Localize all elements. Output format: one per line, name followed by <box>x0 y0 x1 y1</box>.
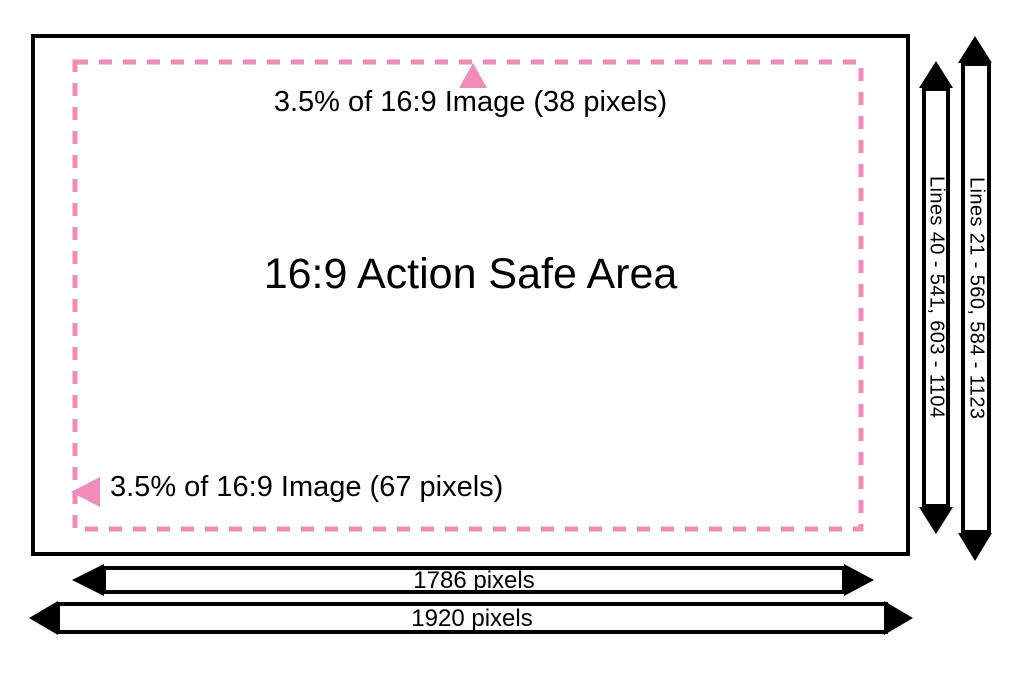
full-width-arrowhead-right-icon <box>884 601 913 635</box>
safe-lines-arrowhead-top-icon <box>919 61 953 88</box>
full-lines-label: Lines 21 - 560, 584 - 1123 <box>965 177 988 419</box>
safe-width-dimension-arrow: 1786 pixels <box>102 566 846 594</box>
safe-width-arrowhead-left-icon <box>72 564 104 596</box>
safe-lines-label: Lines 40 - 541, 603 - 1104 <box>925 176 948 418</box>
full-width-dimension-arrow: 1920 pixels <box>56 602 888 634</box>
top-margin-pointer-icon <box>459 63 487 88</box>
top-margin-label: 3.5% of 16:9 Image (38 pixels) <box>31 86 910 119</box>
diagram-canvas: 3.5% of 16:9 Image (38 pixels) 16:9 Acti… <box>0 0 1016 673</box>
full-lines-dimension-arrow: Lines 21 - 560, 584 - 1123 <box>961 62 991 534</box>
safe-width-label: 1786 pixels <box>413 567 534 594</box>
safe-lines-dimension-arrow: Lines 40 - 541, 603 - 1104 <box>922 87 950 508</box>
full-width-arrowhead-left-icon <box>29 601 58 635</box>
left-margin-label: 3.5% of 16:9 Image (67 pixels) <box>110 471 503 504</box>
safe-area-title: 16:9 Action Safe Area <box>31 250 910 299</box>
safe-width-arrowhead-right-icon <box>844 564 874 596</box>
full-width-label: 1920 pixels <box>411 605 532 632</box>
full-lines-arrowhead-bottom-icon <box>958 533 992 561</box>
safe-lines-arrowhead-bottom-icon <box>919 507 953 534</box>
full-lines-arrowhead-top-icon <box>958 36 992 63</box>
